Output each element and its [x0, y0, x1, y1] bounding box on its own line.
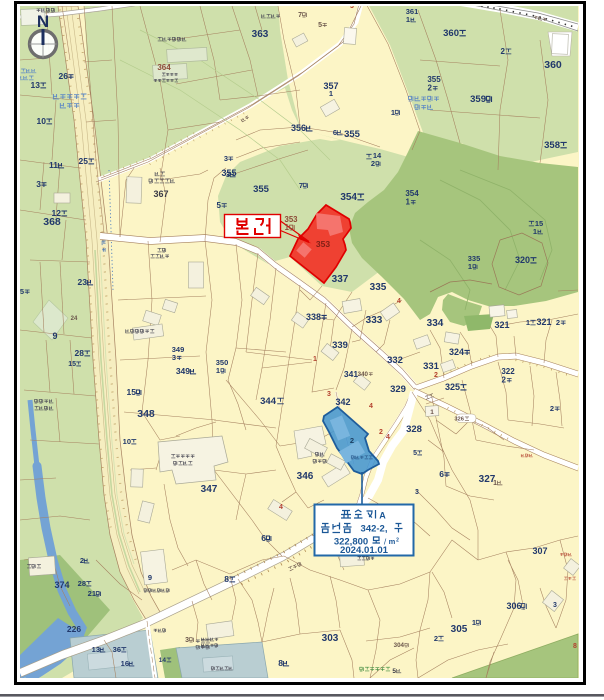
- svg-text:342: 342: [335, 397, 350, 407]
- svg-text:4: 4: [386, 434, 390, 441]
- svg-text:5: 5: [20, 287, 24, 296]
- svg-text:1: 1: [526, 318, 530, 327]
- svg-text:1: 1: [406, 15, 410, 24]
- svg-text:8: 8: [224, 574, 229, 584]
- svg-text:360: 360: [544, 59, 562, 71]
- svg-text:5: 5: [217, 201, 222, 210]
- svg-text:339: 339: [332, 340, 348, 351]
- svg-text:14: 14: [159, 657, 167, 664]
- svg-text:346: 346: [297, 471, 314, 482]
- svg-text:353: 353: [316, 239, 330, 249]
- svg-text:8: 8: [278, 658, 283, 668]
- svg-text:342-2,: 342-2,: [361, 524, 388, 535]
- svg-text:13: 13: [31, 80, 41, 90]
- svg-text:326: 326: [454, 417, 464, 423]
- svg-text:332: 332: [387, 355, 403, 366]
- svg-text:28: 28: [78, 579, 86, 588]
- svg-text:341: 341: [344, 369, 358, 379]
- svg-text:12: 12: [52, 208, 62, 218]
- svg-text:36: 36: [113, 645, 121, 654]
- svg-text:303: 303: [322, 633, 339, 644]
- svg-text:2: 2: [550, 404, 554, 413]
- svg-text:1: 1: [430, 409, 434, 416]
- svg-text:3: 3: [185, 637, 189, 644]
- svg-text:5: 5: [413, 450, 417, 457]
- svg-text:1: 1: [472, 618, 476, 627]
- svg-text:2: 2: [80, 556, 84, 565]
- svg-text:1: 1: [313, 356, 317, 363]
- svg-text:1: 1: [216, 366, 220, 375]
- svg-text:7: 7: [298, 12, 302, 19]
- svg-text:1: 1: [329, 89, 333, 98]
- svg-text:1: 1: [391, 108, 395, 117]
- svg-text:356: 356: [291, 123, 306, 133]
- svg-text:15: 15: [68, 361, 76, 368]
- svg-text:N: N: [37, 12, 49, 31]
- svg-text:324: 324: [449, 347, 464, 357]
- svg-text:2: 2: [434, 372, 438, 379]
- svg-text:325: 325: [445, 382, 460, 392]
- svg-text:3: 3: [172, 353, 176, 362]
- svg-text:334: 334: [427, 318, 444, 329]
- svg-text:355: 355: [221, 168, 236, 178]
- svg-text:A: A: [379, 511, 386, 521]
- svg-text:306: 306: [506, 601, 521, 611]
- svg-text:347: 347: [201, 484, 218, 495]
- svg-text:6: 6: [439, 469, 444, 479]
- svg-text:7: 7: [299, 181, 303, 190]
- svg-text:363: 363: [252, 29, 269, 40]
- svg-text:226: 226: [67, 624, 81, 634]
- svg-text:4: 4: [369, 403, 373, 410]
- svg-text:307: 307: [532, 546, 547, 556]
- svg-text:348: 348: [137, 408, 155, 420]
- svg-text:340: 340: [358, 371, 369, 378]
- svg-text:344: 344: [260, 396, 277, 407]
- svg-text:354: 354: [340, 192, 357, 203]
- svg-text:355: 355: [253, 184, 270, 195]
- svg-text:320: 320: [515, 255, 530, 265]
- svg-text:28: 28: [75, 348, 85, 358]
- svg-text:11: 11: [49, 160, 58, 170]
- svg-text:9: 9: [148, 573, 152, 582]
- svg-text:1: 1: [406, 198, 411, 207]
- svg-text:3: 3: [553, 602, 557, 609]
- svg-text:25: 25: [79, 156, 89, 166]
- svg-text:304: 304: [394, 642, 405, 649]
- svg-text:2: 2: [428, 84, 433, 93]
- svg-text:333: 333: [366, 315, 383, 326]
- svg-text:358: 358: [544, 140, 560, 151]
- svg-text:10: 10: [37, 116, 47, 126]
- svg-text:6: 6: [261, 533, 266, 543]
- svg-text:1: 1: [533, 227, 537, 236]
- svg-text:23: 23: [78, 277, 88, 287]
- svg-text:2: 2: [396, 538, 399, 544]
- svg-text:4: 4: [279, 504, 283, 511]
- svg-text:8: 8: [573, 643, 577, 650]
- svg-text:359: 359: [470, 94, 486, 105]
- svg-text:6: 6: [333, 128, 337, 137]
- svg-text:24: 24: [71, 316, 78, 322]
- svg-text:m: m: [389, 537, 396, 546]
- svg-text:335: 335: [370, 282, 387, 293]
- svg-text:3: 3: [36, 179, 41, 189]
- svg-text:329: 329: [390, 384, 406, 395]
- svg-text:26: 26: [59, 71, 69, 81]
- svg-text:5: 5: [392, 668, 396, 675]
- svg-text:2: 2: [434, 634, 438, 643]
- svg-text:328: 328: [406, 424, 422, 435]
- svg-text:337: 337: [332, 274, 349, 285]
- svg-text:3: 3: [224, 154, 228, 163]
- svg-text:321: 321: [536, 317, 551, 327]
- svg-text:338: 338: [306, 312, 321, 322]
- svg-text:2: 2: [379, 429, 383, 436]
- svg-text:2: 2: [556, 318, 560, 327]
- svg-text:3: 3: [327, 391, 331, 398]
- svg-text:1: 1: [285, 223, 290, 232]
- svg-text:2: 2: [501, 47, 506, 56]
- svg-text:4: 4: [397, 298, 401, 305]
- svg-text:2: 2: [502, 376, 507, 385]
- svg-text:2024.01.01: 2024.01.01: [340, 545, 389, 556]
- svg-text:367: 367: [153, 189, 168, 199]
- svg-text:321: 321: [494, 320, 509, 330]
- svg-text:364: 364: [157, 63, 171, 72]
- svg-text:13: 13: [92, 645, 100, 654]
- svg-text:3: 3: [415, 489, 419, 496]
- svg-text:1: 1: [493, 480, 497, 487]
- svg-text:374: 374: [54, 580, 69, 590]
- svg-text:305: 305: [451, 624, 468, 635]
- svg-text:21: 21: [88, 589, 96, 598]
- svg-text:5: 5: [318, 22, 322, 29]
- svg-text:349: 349: [176, 366, 190, 376]
- svg-text:360: 360: [443, 28, 459, 39]
- svg-text:15: 15: [127, 387, 137, 397]
- svg-text:355: 355: [344, 129, 361, 140]
- svg-text:10: 10: [123, 437, 131, 446]
- svg-text:9: 9: [52, 331, 57, 341]
- svg-text:331: 331: [423, 361, 440, 372]
- svg-text:1: 1: [468, 262, 472, 271]
- svg-text:2: 2: [350, 436, 354, 445]
- svg-text:2: 2: [371, 159, 375, 168]
- svg-text:16: 16: [121, 659, 129, 668]
